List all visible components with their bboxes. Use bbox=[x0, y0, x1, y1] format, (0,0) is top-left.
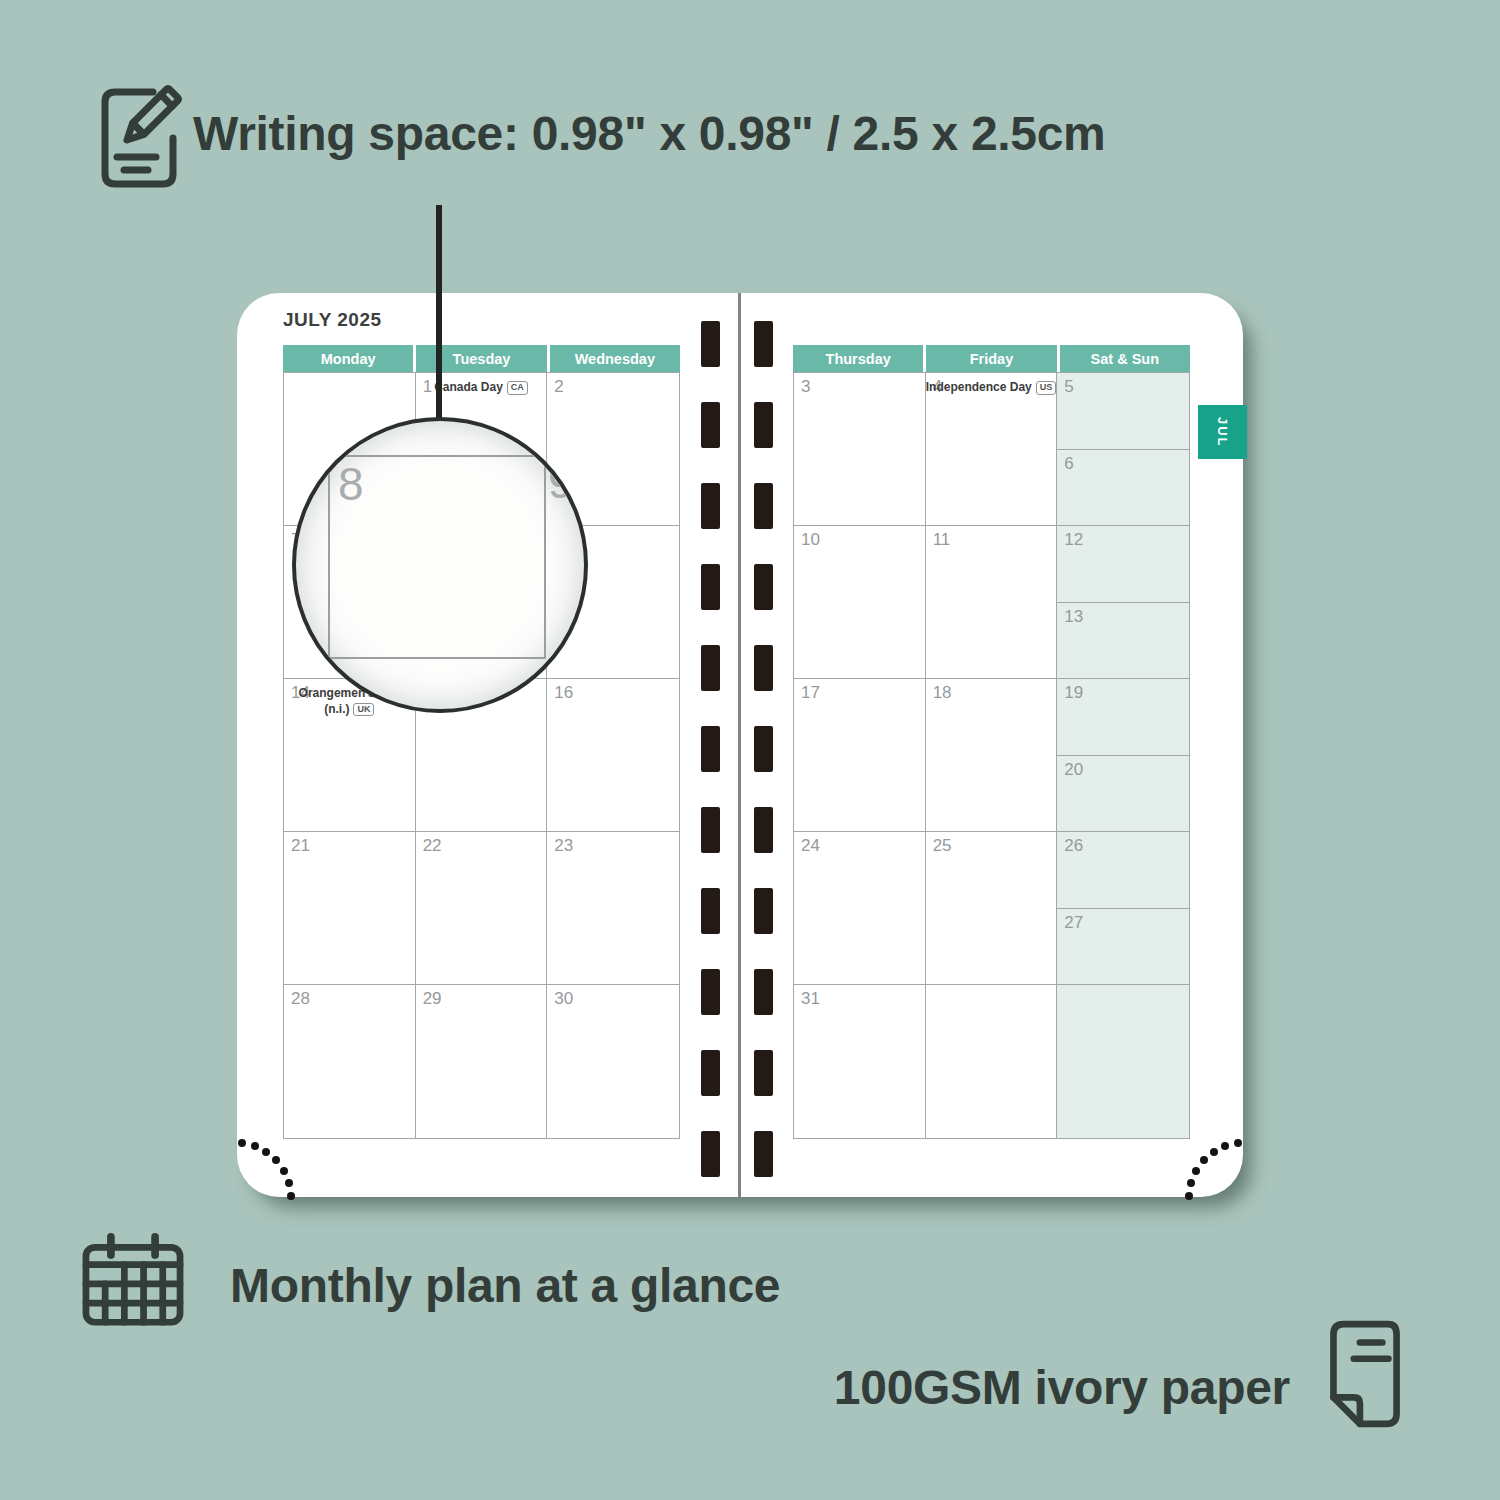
weekend-half-cell: 5 bbox=[1057, 373, 1189, 450]
binding-hole bbox=[754, 807, 773, 853]
weekday-header: Monday bbox=[283, 345, 413, 372]
day-number: 12 bbox=[1064, 530, 1083, 550]
perforation-dot bbox=[1192, 1167, 1200, 1175]
calendar-right-page: ThursdayFridaySat & Sun 34Independence D… bbox=[793, 345, 1190, 1139]
day-cell: 10 bbox=[794, 526, 926, 679]
weekend-half-cell: 6 bbox=[1057, 450, 1189, 526]
day-number: 17 bbox=[801, 683, 820, 703]
day-cell: 23 bbox=[547, 832, 679, 985]
country-badge: CA bbox=[507, 381, 528, 395]
day-number: 26 bbox=[1064, 836, 1083, 856]
binding-hole bbox=[754, 888, 773, 934]
paper-label: 100GSM ivory paper bbox=[600, 1360, 1290, 1415]
binding-hole bbox=[701, 321, 720, 367]
perforation-dot bbox=[1200, 1156, 1208, 1164]
binding-hole bbox=[754, 402, 773, 448]
binding-hole bbox=[754, 969, 773, 1015]
day-number: 31 bbox=[801, 989, 820, 1009]
day-number: 20 bbox=[1064, 760, 1083, 780]
day-number: 28 bbox=[291, 989, 310, 1009]
weekend-half-cell: 13 bbox=[1057, 603, 1189, 679]
weekend-half-cell: 19 bbox=[1057, 679, 1189, 756]
day-number: 16 bbox=[554, 683, 573, 703]
weekday-header: Thursday bbox=[793, 345, 923, 372]
day-cell: 30 bbox=[547, 985, 679, 1138]
country-badge: US bbox=[1036, 381, 1057, 395]
binding-hole bbox=[701, 888, 720, 934]
perforation-dot bbox=[1221, 1142, 1229, 1150]
planner-product-image: { "colors": { "background": "#a9c4bc", "… bbox=[0, 0, 1500, 1500]
binding-hole bbox=[701, 483, 720, 529]
weekend-full-cell bbox=[1057, 985, 1189, 1138]
day-number: 5 bbox=[1064, 377, 1073, 397]
binding-hole bbox=[701, 564, 720, 610]
day-number: 24 bbox=[801, 836, 820, 856]
holiday-label: Independence DayUS bbox=[926, 380, 1057, 396]
day-number: 18 bbox=[933, 683, 952, 703]
weekend-half-cell: 26 bbox=[1057, 832, 1189, 909]
page-crease bbox=[738, 293, 741, 1197]
perforation-dot bbox=[287, 1192, 295, 1200]
day-cell: 29 bbox=[416, 985, 548, 1138]
binding-hole bbox=[701, 969, 720, 1015]
day-cell: 24 bbox=[794, 832, 926, 985]
binding-hole bbox=[754, 1131, 773, 1177]
binding-hole bbox=[701, 645, 720, 691]
binding-hole bbox=[701, 1050, 720, 1096]
country-badge: UK bbox=[353, 703, 374, 717]
binding-hole bbox=[754, 483, 773, 529]
writing-space-label: Writing space: 0.98" x 0.98" / 2.5 x 2.5… bbox=[193, 106, 1106, 161]
weekday-header-row: MondayTuesdayWednesday bbox=[283, 345, 680, 372]
perforation-dot bbox=[238, 1139, 246, 1147]
planner-notebook: JULY 2025 MondayTuesdayWednesday 1Canada… bbox=[237, 293, 1243, 1197]
perforation-dot bbox=[1210, 1148, 1218, 1156]
day-number: 22 bbox=[423, 836, 442, 856]
day-number: 6 bbox=[1064, 454, 1073, 474]
day-cell: 18 bbox=[926, 679, 1058, 832]
day-number: 11 bbox=[933, 530, 951, 550]
day-cell: 31 bbox=[794, 985, 926, 1138]
weekday-header: Friday bbox=[926, 345, 1056, 372]
day-number: 30 bbox=[554, 989, 573, 1009]
weekend-half-cell: 20 bbox=[1057, 756, 1189, 832]
binding-hole bbox=[701, 726, 720, 772]
day-cell: 1920 bbox=[1057, 679, 1189, 832]
calendar-icon bbox=[80, 1232, 186, 1328]
day-number: 29 bbox=[423, 989, 442, 1009]
binding-hole bbox=[701, 1131, 720, 1177]
day-number: 3 bbox=[801, 377, 810, 397]
day-cell: 28 bbox=[284, 985, 416, 1138]
day-cell: 21 bbox=[284, 832, 416, 985]
perforation-dot bbox=[1187, 1179, 1195, 1187]
day-number: 13 bbox=[1064, 607, 1083, 627]
month-tab: JUL bbox=[1198, 405, 1247, 459]
calendar-grid: 34Independence DayUS56101112131718192024… bbox=[793, 372, 1190, 1139]
day-number: 23 bbox=[554, 836, 573, 856]
binding-hole bbox=[754, 564, 773, 610]
weekday-header: Sat & Sun bbox=[1060, 345, 1190, 372]
note-pencil-icon bbox=[93, 78, 183, 188]
binding-hole bbox=[754, 726, 773, 772]
day-cell: 16 bbox=[547, 679, 679, 832]
callout-leader-line bbox=[436, 205, 442, 421]
perforation-dot bbox=[1185, 1192, 1193, 1200]
day-cell: 3 bbox=[794, 373, 926, 526]
day-number: 10 bbox=[801, 530, 820, 550]
day-number: 21 bbox=[291, 836, 310, 856]
perforation-dot bbox=[272, 1156, 280, 1164]
day-cell: 1213 bbox=[1057, 526, 1189, 679]
day-number: 19 bbox=[1064, 683, 1083, 703]
day-number: 2 bbox=[554, 377, 563, 397]
holiday-line: Independence DayUS bbox=[926, 380, 1057, 396]
writing-space-square: 8 bbox=[328, 455, 546, 659]
perforation-dot bbox=[1234, 1139, 1242, 1147]
binding-hole bbox=[701, 402, 720, 448]
month-tab-label: JUL bbox=[1215, 417, 1230, 448]
day-cell bbox=[1057, 985, 1189, 1138]
perforation-dot bbox=[280, 1167, 288, 1175]
magnified-day-number: 8 bbox=[338, 457, 364, 511]
binding-hole bbox=[754, 321, 773, 367]
day-cell bbox=[926, 985, 1058, 1138]
day-cell: 11 bbox=[926, 526, 1058, 679]
binding-hole bbox=[754, 645, 773, 691]
monthly-plan-label: Monthly plan at a glance bbox=[230, 1258, 780, 1313]
day-cell: 25 bbox=[926, 832, 1058, 985]
day-cell: 22 bbox=[416, 832, 548, 985]
day-number: 27 bbox=[1064, 913, 1083, 933]
month-title: JULY 2025 bbox=[283, 309, 382, 331]
weekend-half-cell: 12 bbox=[1057, 526, 1189, 603]
perforation-dot bbox=[285, 1179, 293, 1187]
binding-hole bbox=[754, 1050, 773, 1096]
binding-hole bbox=[701, 807, 720, 853]
weekday-header: Wednesday bbox=[550, 345, 680, 372]
day-cell: 2627 bbox=[1057, 832, 1189, 985]
day-cell: 4Independence DayUS bbox=[926, 373, 1058, 526]
perforation-dot bbox=[262, 1148, 270, 1156]
day-cell: 17 bbox=[794, 679, 926, 832]
magnifier-circle: 8 9 bbox=[292, 417, 588, 713]
perforation-dot bbox=[251, 1142, 259, 1150]
weekend-half-cell: 27 bbox=[1057, 909, 1189, 985]
paper-icon bbox=[1322, 1318, 1406, 1430]
day-number: 25 bbox=[933, 836, 952, 856]
day-cell: 56 bbox=[1057, 373, 1189, 526]
weekday-header-row: ThursdayFridaySat & Sun bbox=[793, 345, 1190, 372]
